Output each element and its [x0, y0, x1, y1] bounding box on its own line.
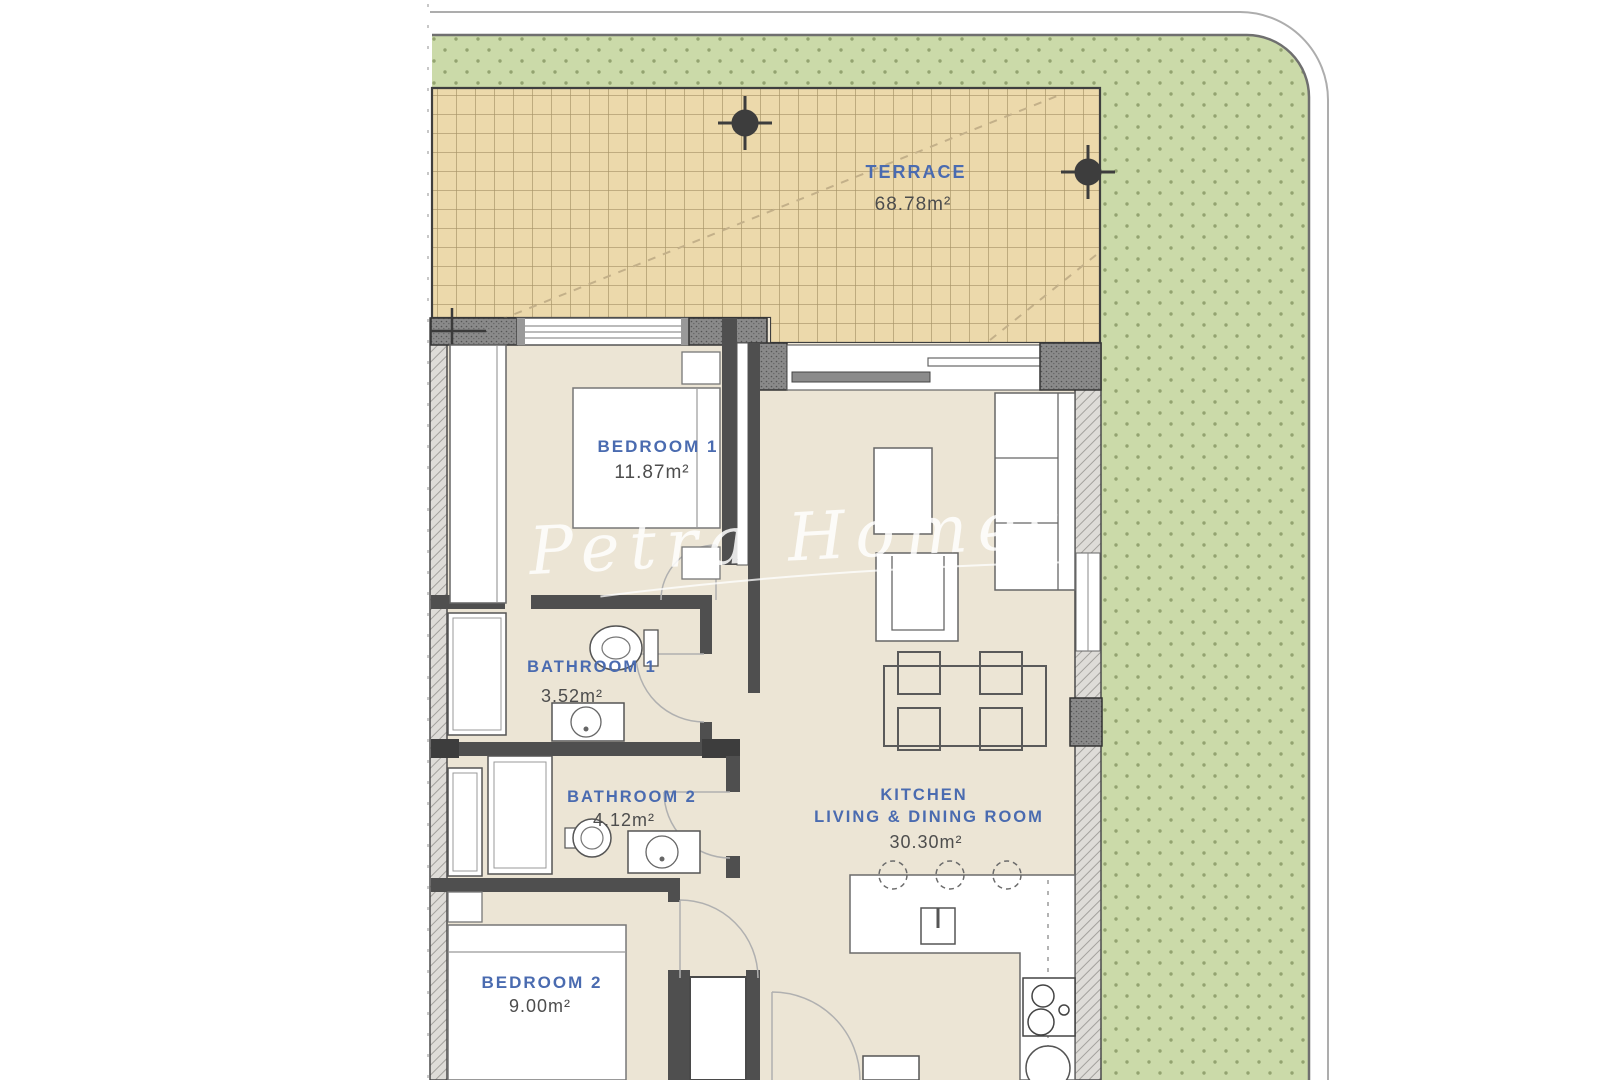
shower-icon [488, 756, 552, 874]
nightstand-icon [682, 352, 720, 384]
sink-icon [628, 831, 700, 873]
wall-bathroom1-right-a [700, 609, 712, 654]
floor-plan-page: TERRACE 68.78m² BEDROOM 1 11.87m² BATHRO… [0, 0, 1620, 1080]
kitchen-label-line2: LIVING & DINING ROOM [814, 808, 1044, 826]
bathroom1-label: BATHROOM 1 [527, 658, 657, 676]
wall-bathroom2-right-b [726, 856, 740, 878]
sliding-door [787, 345, 1042, 390]
wall-corner-block [1040, 343, 1101, 390]
bedroom1-window [517, 318, 689, 345]
terrace [432, 88, 1100, 343]
hall-door-leaf [690, 977, 746, 1080]
terrace-label: TERRACE [865, 162, 966, 182]
wall-bedroom2-right [668, 970, 680, 1080]
terrace-area: 68.78m² [875, 194, 952, 215]
bedroom2-area: 9.00m² [509, 996, 571, 1016]
wall-bath1-bath2 [431, 742, 740, 756]
sink-icon [552, 703, 624, 741]
right-wall-window [1076, 553, 1100, 651]
cooktop-icon [1023, 978, 1075, 1036]
wall-bedroom2-right-stub [668, 892, 680, 902]
bathroom1-area: 3.52m² [541, 686, 603, 706]
fridge-icon [863, 1056, 919, 1080]
wall-left [430, 318, 447, 1080]
wall-pilaster-block [1070, 698, 1102, 746]
bedroom1-label: BEDROOM 1 [598, 437, 719, 456]
terrace-tiles [432, 88, 1100, 343]
wall-bedroom1-bottom-b [531, 595, 712, 609]
wall-cap-block [431, 739, 459, 758]
island-sink-icon [921, 908, 955, 944]
column-dot [732, 110, 758, 136]
bedroom1-area: 11.87m² [614, 462, 689, 483]
hall-door-jamb-left [680, 970, 690, 1080]
wall-bathroom2-right-a [726, 756, 740, 792]
kitchen-label-line1: KITCHEN [880, 786, 967, 804]
shower-icon [448, 613, 506, 735]
wardrobe-icon [450, 345, 506, 603]
bathroom2-area: 4.12m² [593, 810, 655, 830]
floor-plan-svg: TERRACE 68.78m² BEDROOM 1 11.87m² BATHRO… [0, 0, 1620, 1080]
wall-cap-block [702, 739, 740, 758]
wall-bath2-bed2 [431, 878, 680, 892]
bathroom2-label: BATHROOM 2 [567, 788, 697, 806]
nightstand-icon [448, 892, 482, 922]
column-dot [1075, 159, 1101, 185]
bedroom2-label: BEDROOM 2 [482, 973, 603, 992]
hall-door-jamb-right [746, 970, 760, 1080]
kitchen-area: 30.30m² [889, 832, 962, 852]
